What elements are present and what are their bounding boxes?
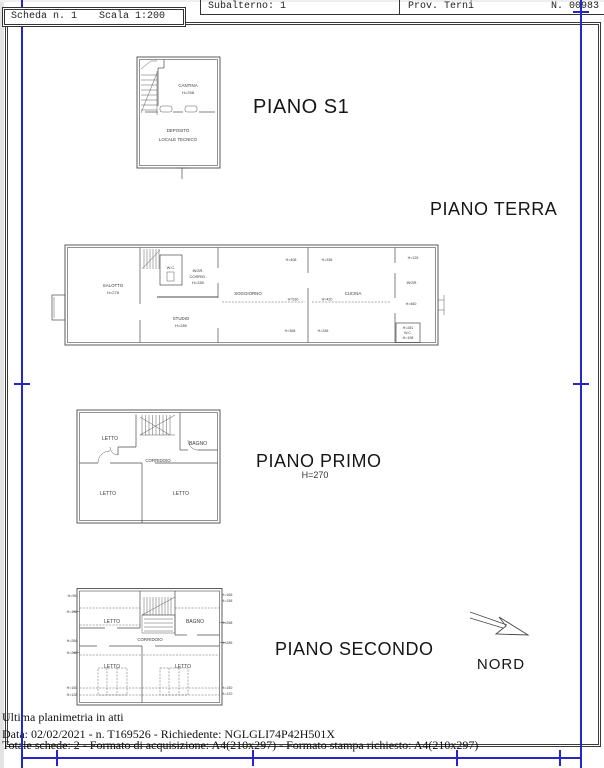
height-label: H=460 <box>406 302 417 306</box>
room-label-wc: W.C. <box>167 265 176 270</box>
scan-edge <box>0 0 4 768</box>
room-label-letto: LETTO <box>173 491 189 497</box>
height-label: H=125 <box>408 256 419 260</box>
stairs-icon <box>142 597 175 633</box>
room-label-bagno: BAGNO <box>189 441 207 447</box>
floor-title-piano-terra: PIANO TERRA <box>430 199 557 220</box>
north-arrow-icon <box>470 612 528 635</box>
height-label: H=336 <box>322 258 333 262</box>
height-label: H=285 <box>222 641 233 645</box>
room-label-letto: LETTO <box>104 619 120 625</box>
north-compass: NORD <box>465 595 545 680</box>
cadastral-sheet-page: Scheda n. 1 Scala 1:200 Subalterno: 1 Pr… <box>0 0 604 768</box>
room-label-soggiorno: SOGGIORNO <box>234 291 262 296</box>
registration-tick <box>559 750 561 766</box>
north-label: NORD <box>477 656 525 673</box>
height-label: H=198 <box>403 336 414 340</box>
fixture <box>167 272 174 281</box>
room-label-corridoio: CORRIDOIO <box>145 458 171 463</box>
room-label-deposito: DEPOSITO <box>167 128 190 133</box>
provincia-label: Prov. Terni <box>408 1 474 12</box>
height-label: H=120 <box>222 692 233 696</box>
height-label: H=268 <box>222 621 233 625</box>
room-label-ingresso: INGR. <box>406 280 417 285</box>
room-label-letto: LETTO <box>100 491 116 497</box>
room-label-corridoio: CORRIDOIO <box>137 637 163 642</box>
niche <box>185 106 197 112</box>
floor-height-piano-primo: H=270 <box>256 470 374 480</box>
height-label: H=268 <box>67 651 78 655</box>
scheda-box: Scheda n. 1 Scala 1:200 <box>2 7 186 27</box>
floor-title-piano-primo: PIANO PRIMO <box>256 451 382 472</box>
room-label-letto: LETTO <box>102 436 118 442</box>
floorplan-piano-secondo: LETTO BAGNO CORRIDOIO LETTO LETTO H=95 H… <box>45 585 260 712</box>
floorplan-piano-terra: W.C. INGR. CORRID. H=280 STUDIO H=280 SA… <box>50 238 450 355</box>
scheda-box-border: Scheda n. 1 Scala 1:200 <box>4 9 184 25</box>
registration-tick <box>252 750 254 766</box>
room-label-letto: LETTO <box>175 664 191 670</box>
room-label-ingr: INGR. <box>192 268 203 273</box>
height-label: H=128 <box>67 693 78 697</box>
registration-tick <box>56 750 58 766</box>
floorplan-piano-primo: LETTO BAGNO CORRIDOIO LETTO LETTO <box>70 405 240 530</box>
registration-line-bottom <box>21 757 582 759</box>
room-label-bagno: BAGNO <box>186 619 204 625</box>
height-label: H=150 <box>67 610 78 614</box>
door-arc <box>98 451 110 463</box>
height-label: H=95 <box>68 594 77 598</box>
floor-title-piano-s1: PIANO S1 <box>253 96 349 119</box>
roof-slope-zone <box>98 668 188 695</box>
registration-tick <box>456 750 458 766</box>
floorplan-piano-s1: CANTINA H=258 DEPOSITO LOCALE TECNICO <box>125 55 230 180</box>
height-label: H=268 <box>67 639 78 643</box>
room-label-cantina: CANTINA <box>178 83 197 88</box>
room-label-corrid: CORRID. <box>190 274 207 279</box>
height-label: H=158 <box>222 599 233 603</box>
scala-label: Scala 1:200 <box>99 11 165 22</box>
niche <box>160 106 172 112</box>
room-label-locale-tecnico: LOCALE TECNICO <box>159 137 198 142</box>
height-label: H=281 <box>403 326 414 330</box>
room-label-cucina: CUCINA <box>345 291 362 296</box>
height-label: H=165 <box>222 593 233 597</box>
registration-tick <box>573 11 589 13</box>
height-label: H=408 <box>286 258 297 262</box>
stairs-icon <box>142 249 160 269</box>
room-label-wc2: W.C. <box>404 331 412 335</box>
stairs-icon <box>140 415 175 435</box>
room-height-ingr: H=280 <box>192 280 205 285</box>
room-height-cantina: H=258 <box>182 90 195 95</box>
room-height-salotto: H=278 <box>107 290 120 295</box>
height-label: H=368 <box>285 329 296 333</box>
height-label: H=150 <box>222 686 233 690</box>
subalterno-label: Subalterno: 1 <box>208 1 286 12</box>
room-label-studio: STUDIO <box>173 316 190 321</box>
room-height-cucina: H=420 <box>322 298 333 302</box>
registration-tick <box>573 383 589 385</box>
height-label: H=336 <box>318 329 329 333</box>
floor-title-piano-secondo: PIANO SECONDO <box>275 639 434 660</box>
height-label: H=150 <box>67 686 78 690</box>
room-label-salotto: SALOTTO <box>103 283 124 288</box>
scheda-label: Scheda n. 1 <box>11 11 77 22</box>
door-arc <box>110 447 118 455</box>
registration-tick <box>14 383 30 385</box>
subalterno-box: Subalterno: 1 <box>200 0 400 15</box>
stairs-icon <box>141 61 157 115</box>
room-height-studio: H=280 <box>175 323 188 328</box>
room-label-letto: LETTO <box>104 664 120 670</box>
footer-format-line: Totale schede: 2 - Formato di acquisizio… <box>2 738 478 753</box>
room-height-soggiorno: H=530 <box>288 298 299 302</box>
